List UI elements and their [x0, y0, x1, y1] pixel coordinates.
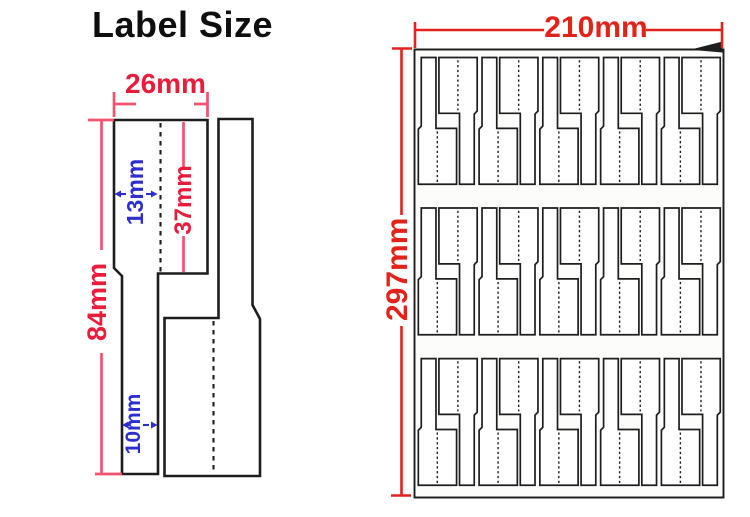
dim-sheet-height: 297mm — [382, 221, 412, 321]
label-size-diagram: Label Size 26mm 84mm 37mm 13mm 10mm 210m… — [0, 0, 750, 517]
dim-label-tail-width: 10mm — [123, 384, 149, 464]
dim-label-upper-height: 37mm — [171, 155, 197, 245]
dim-label-fold-offset: 13mm — [123, 152, 149, 232]
dim-label-total-height: 84mm — [83, 257, 111, 347]
sheet-drawing — [415, 50, 724, 498]
dim-label-width: 26mm — [125, 69, 205, 98]
page-title: Label Size — [92, 6, 252, 44]
dim-sheet-width: 210mm — [544, 12, 648, 44]
diagram-linework — [0, 0, 750, 517]
